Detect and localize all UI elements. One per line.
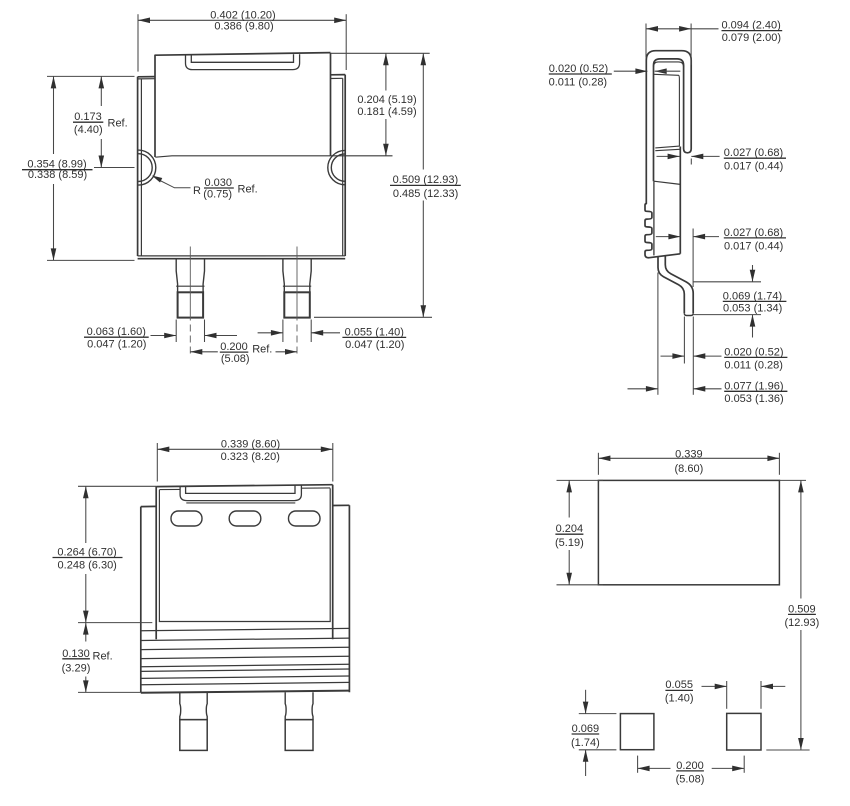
svg-text:0.047 (1.20): 0.047 (1.20) — [345, 339, 404, 351]
svg-text:0.063 (1.60): 0.063 (1.60) — [87, 326, 146, 338]
svg-text:0.027 (0.68): 0.027 (0.68) — [724, 147, 783, 159]
svg-text:(5.08): (5.08) — [676, 773, 705, 785]
svg-text:Ref.: Ref. — [252, 343, 272, 355]
svg-text:0.509 (12.93): 0.509 (12.93) — [393, 174, 458, 186]
svg-text:Ref.: Ref. — [93, 651, 113, 663]
svg-text:(0.75): (0.75) — [203, 189, 232, 201]
svg-text:0.323 (8.20): 0.323 (8.20) — [221, 451, 280, 463]
svg-text:0.030: 0.030 — [205, 177, 233, 189]
svg-text:0.200: 0.200 — [676, 760, 704, 772]
svg-text:(12.93): (12.93) — [784, 617, 819, 629]
svg-text:R: R — [193, 185, 201, 197]
svg-text:0.204: 0.204 — [556, 523, 584, 535]
svg-text:0.011 (0.28): 0.011 (0.28) — [549, 76, 608, 88]
svg-text:0.027 (0.68): 0.027 (0.68) — [724, 227, 783, 239]
svg-text:(8.60): (8.60) — [675, 463, 704, 475]
svg-text:0.017 (0.44): 0.017 (0.44) — [724, 161, 783, 173]
svg-text:Ref.: Ref. — [238, 183, 258, 195]
svg-text:0.079 (2.00): 0.079 (2.00) — [722, 32, 781, 44]
svg-text:0.094 (2.40): 0.094 (2.40) — [722, 19, 781, 31]
svg-text:(5.08): (5.08) — [221, 353, 250, 365]
svg-text:0.069: 0.069 — [572, 723, 600, 735]
svg-text:Ref.: Ref. — [108, 118, 128, 130]
svg-text:0.339: 0.339 — [675, 449, 703, 461]
svg-text:0.485 (12.33): 0.485 (12.33) — [393, 188, 458, 200]
svg-text:0.264 (6.70): 0.264 (6.70) — [57, 546, 116, 558]
svg-text:0.130: 0.130 — [62, 648, 90, 660]
svg-text:0.017 (0.44): 0.017 (0.44) — [724, 240, 783, 252]
svg-text:0.011 (0.28): 0.011 (0.28) — [724, 359, 783, 371]
svg-text:0.200: 0.200 — [220, 341, 248, 353]
svg-text:0.047 (1.20): 0.047 (1.20) — [87, 338, 146, 350]
svg-text:0.055: 0.055 — [665, 679, 693, 691]
svg-text:0.204 (5.19): 0.204 (5.19) — [357, 94, 416, 106]
svg-text:0.069 (1.74): 0.069 (1.74) — [723, 290, 782, 302]
svg-text:0.338 (8.59): 0.338 (8.59) — [28, 169, 87, 181]
svg-text:(3.29): (3.29) — [62, 663, 91, 675]
svg-text:0.248 (6.30): 0.248 (6.30) — [58, 559, 117, 571]
svg-text:0.055 (1.40): 0.055 (1.40) — [345, 326, 404, 338]
svg-text:0.181 (4.59): 0.181 (4.59) — [357, 106, 416, 118]
svg-text:0.053 (1.36): 0.053 (1.36) — [724, 393, 783, 405]
svg-text:(5.19): (5.19) — [555, 537, 584, 549]
svg-text:(1.74): (1.74) — [571, 737, 600, 749]
svg-text:(4.40): (4.40) — [74, 124, 103, 136]
svg-text:0.053 (1.34): 0.053 (1.34) — [723, 303, 782, 315]
svg-text:(1.40): (1.40) — [665, 693, 694, 705]
svg-text:0.509: 0.509 — [788, 603, 816, 615]
svg-text:0.386 (9.80): 0.386 (9.80) — [214, 20, 273, 32]
svg-text:0.173: 0.173 — [74, 111, 102, 123]
svg-text:0.339 (8.60): 0.339 (8.60) — [221, 438, 280, 450]
